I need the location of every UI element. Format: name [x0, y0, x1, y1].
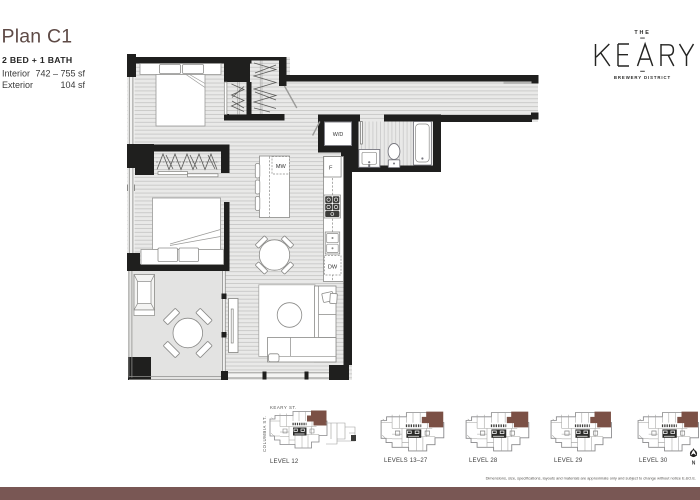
svg-text:MW: MW [276, 164, 287, 170]
svg-text:KEARY ST.: KEARY ST. [270, 405, 297, 410]
svg-text:742 – 755 sf: 742 – 755 sf [35, 69, 85, 79]
svg-text:W/D: W/D [333, 132, 344, 138]
svg-text:DW: DW [328, 265, 338, 271]
svg-text:Interior: Interior [2, 69, 30, 79]
svg-text:Exterior: Exterior [2, 80, 33, 90]
svg-text:LEVEL 29: LEVEL 29 [554, 458, 583, 464]
svg-text:THE: THE [634, 30, 650, 36]
svg-text:COLUMBIA ST.: COLUMBIA ST. [262, 416, 267, 452]
svg-text:N: N [692, 461, 696, 467]
svg-text:LEVEL 30: LEVEL 30 [639, 458, 668, 464]
svg-text:Dimensions, size, specificatio: Dimensions, size, specifications, layout… [486, 476, 696, 481]
svg-text:F: F [329, 166, 333, 172]
svg-text:104 sf: 104 sf [60, 80, 85, 90]
svg-text:2 BED + 1 BATH: 2 BED + 1 BATH [2, 55, 72, 65]
svg-text:Plan C1: Plan C1 [2, 26, 73, 48]
svg-text:LEVELS 13–27: LEVELS 13–27 [384, 458, 428, 464]
svg-text:BREWERY DISTRICT: BREWERY DISTRICT [614, 75, 671, 80]
svg-text:LEVEL 12: LEVEL 12 [270, 459, 299, 465]
svg-text:LEVEL 28: LEVEL 28 [469, 458, 498, 464]
